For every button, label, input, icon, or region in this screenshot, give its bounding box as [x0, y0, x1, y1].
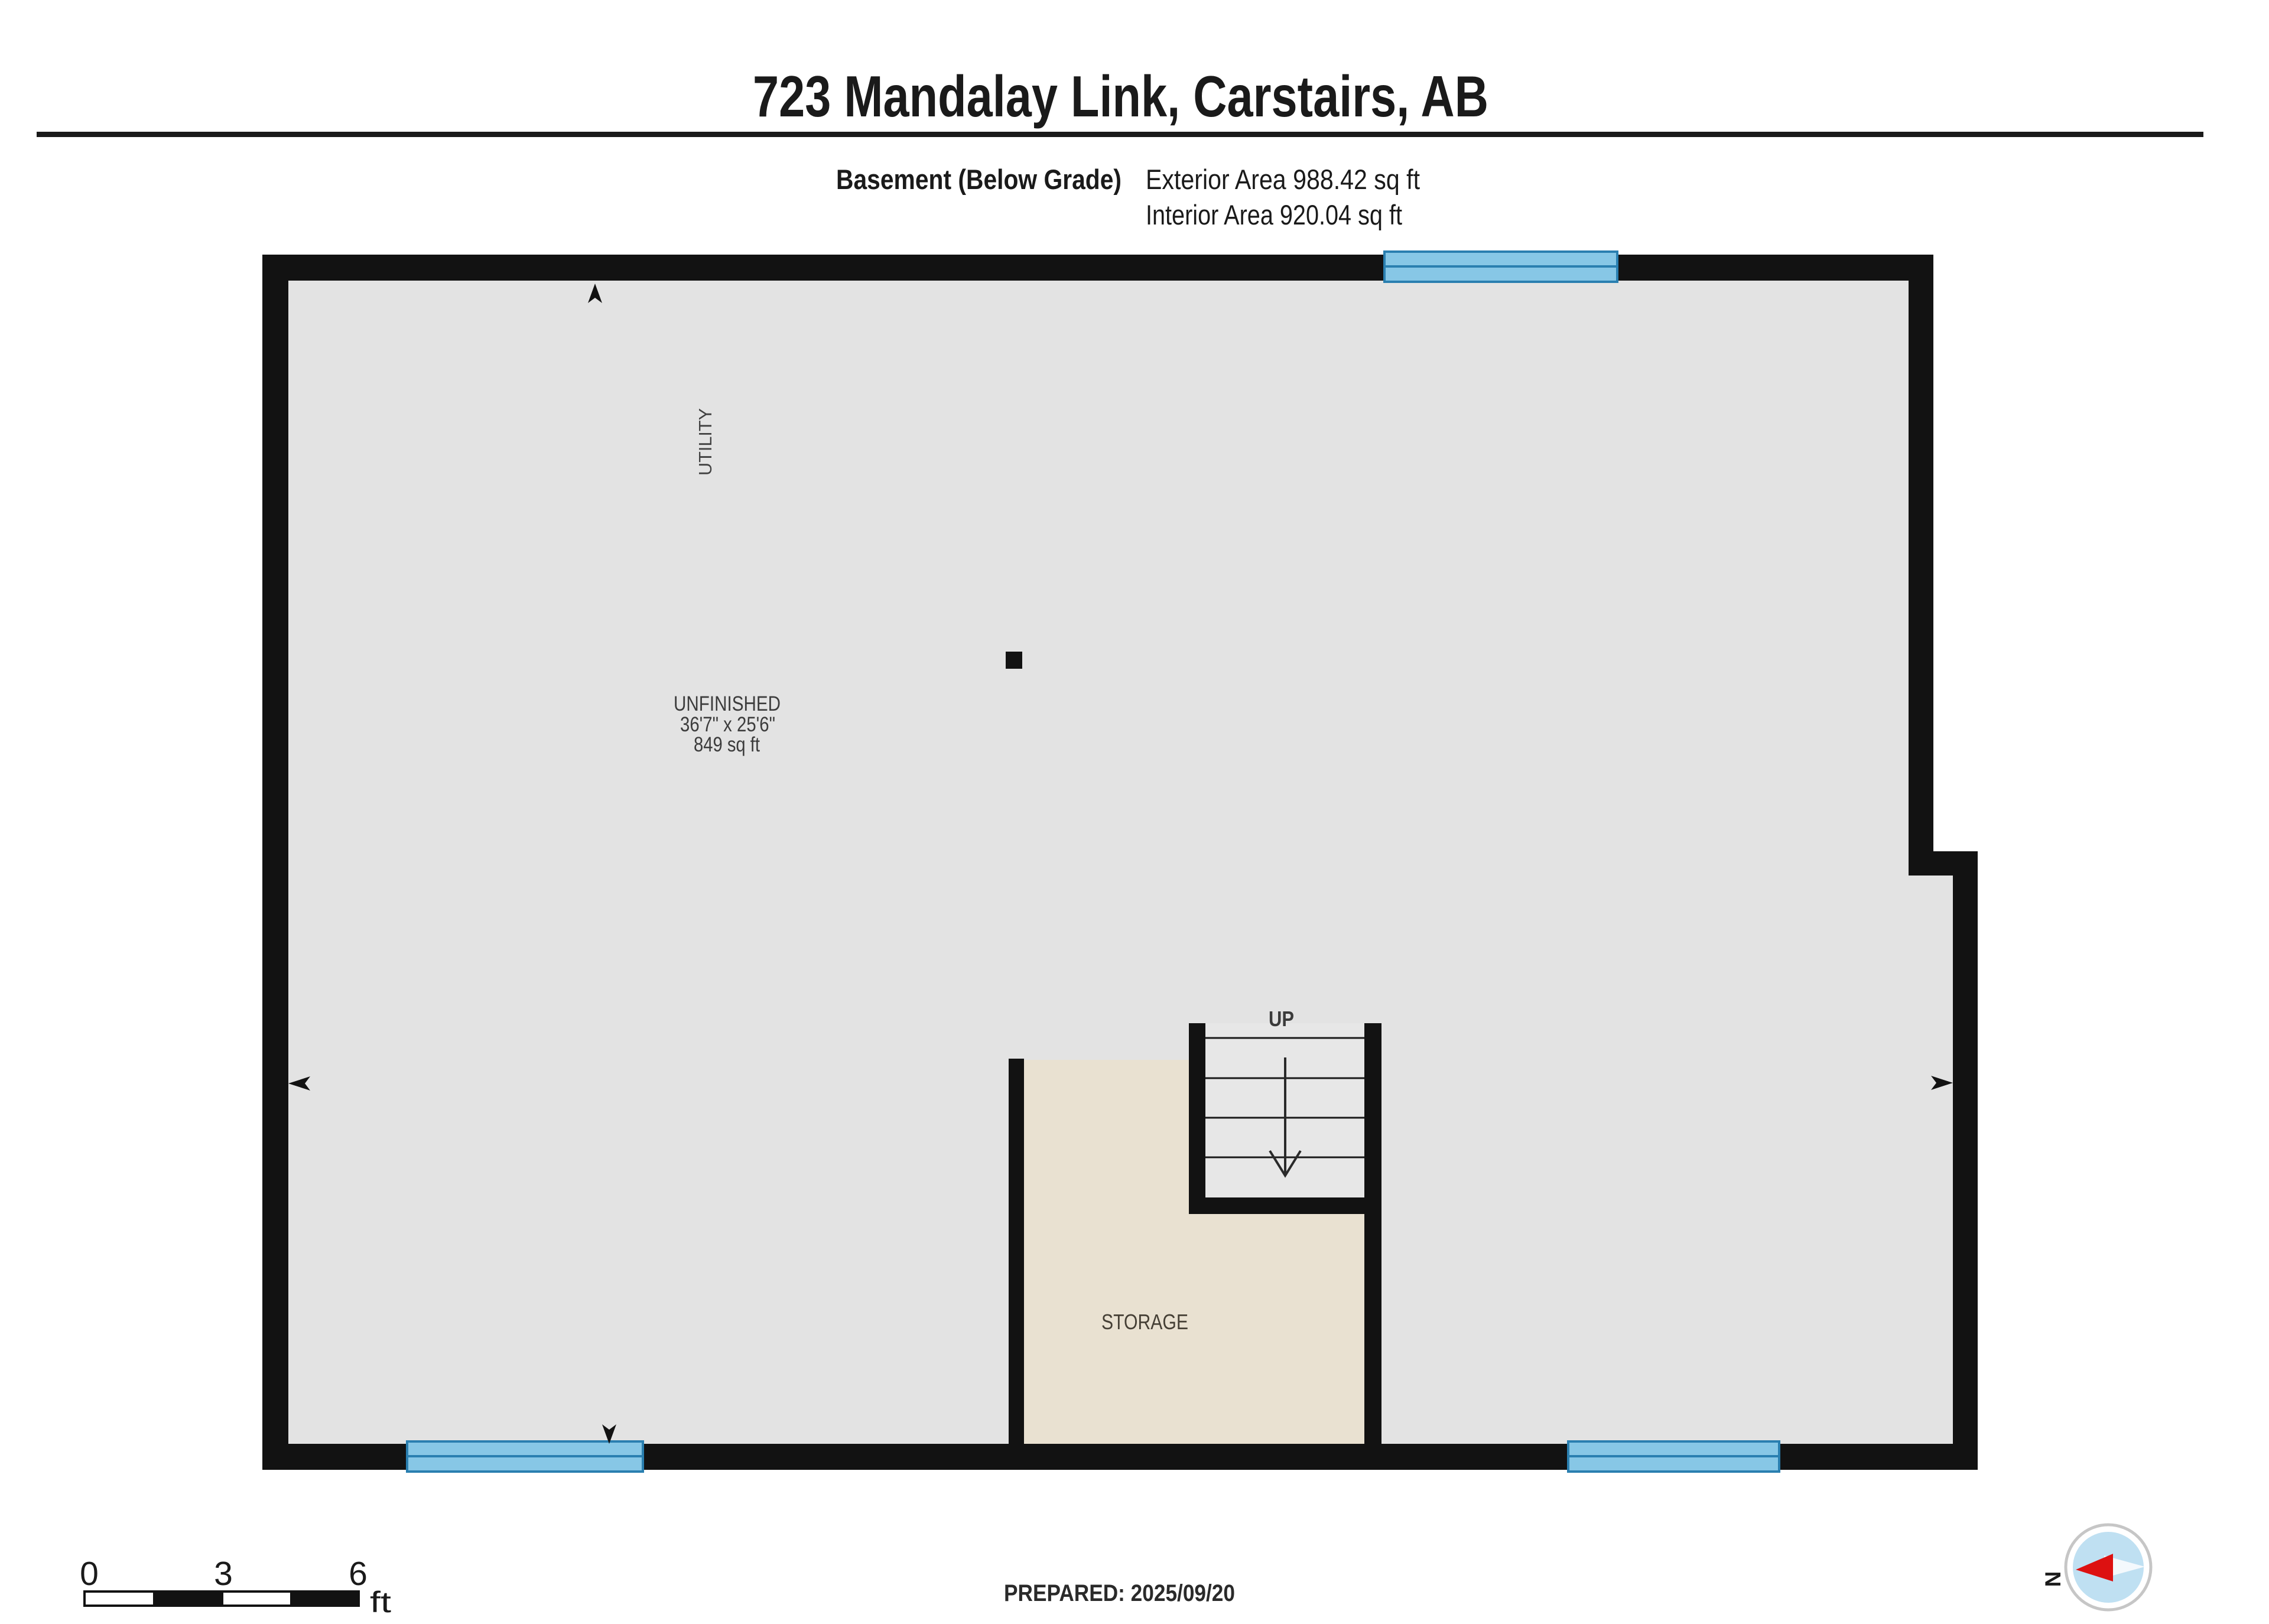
svg-text:849 sq ft: 849 sq ft	[694, 733, 760, 756]
svg-text:STORAGE: STORAGE	[1101, 1310, 1188, 1334]
svg-text:PREPARED: 2025/09/20: PREPARED: 2025/09/20	[1004, 1580, 1235, 1606]
svg-text:3: 3	[214, 1555, 233, 1593]
svg-text:UP: UP	[1269, 1007, 1294, 1031]
svg-text:6: 6	[349, 1555, 368, 1593]
svg-text:Basement (Below Grade): Basement (Below Grade)	[836, 164, 1122, 195]
svg-text:0: 0	[80, 1555, 99, 1593]
svg-text:UNFINISHED: UNFINISHED	[674, 692, 781, 715]
svg-text:Exterior Area 988.42 sq ft: Exterior Area 988.42 sq ft	[1146, 164, 1420, 195]
svg-text:N: N	[2041, 1571, 2065, 1587]
svg-text:723 Mandalay Link, Carstairs,: 723 Mandalay Link, Carstairs, AB	[753, 64, 1488, 129]
svg-text:Interior Area 920.04 sq ft: Interior Area 920.04 sq ft	[1146, 199, 1402, 230]
svg-text:UTILITY: UTILITY	[695, 408, 716, 476]
svg-text:ft: ft	[370, 1586, 391, 1619]
